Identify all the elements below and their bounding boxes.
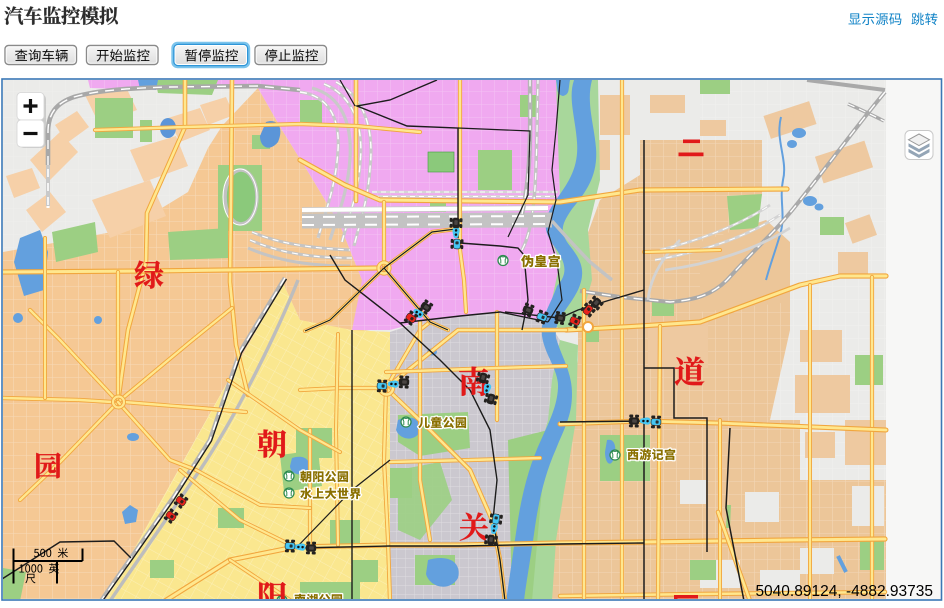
svg-text:5040.89124, -4882.93735: 5040.89124, -4882.93735: [755, 583, 933, 600]
